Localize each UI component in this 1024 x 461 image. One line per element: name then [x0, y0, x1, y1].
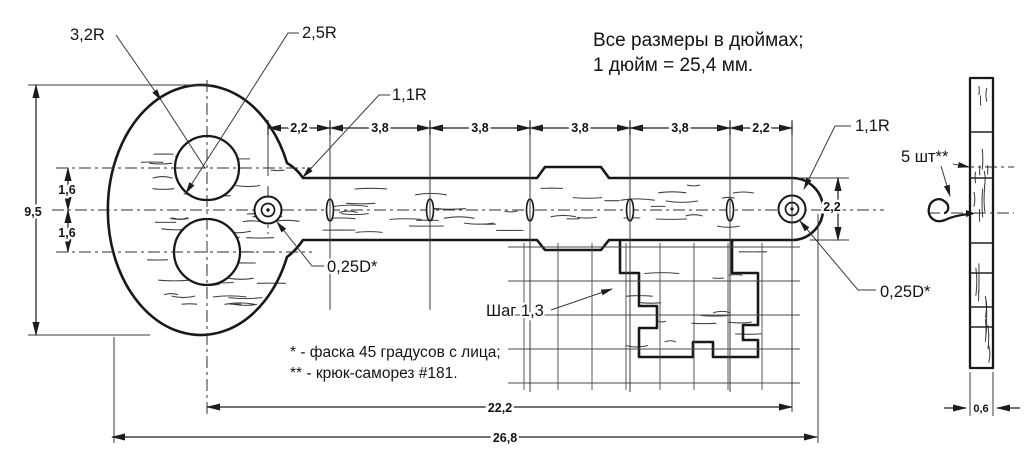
screw-hook	[929, 199, 969, 221]
dim-shank-height: 2,2	[823, 200, 840, 214]
dim-chain-2: 3,8	[471, 121, 488, 135]
wood-grain-shank	[323, 185, 754, 232]
board-side	[970, 78, 993, 368]
footnote-chamfer: * - фаска 45 градусов с лица;	[290, 344, 501, 361]
dim-total-length: 26,8	[493, 431, 517, 445]
side-view	[928, 78, 1014, 368]
dim-holes-span: 22,2	[488, 401, 512, 415]
key-coat-rack-blueprint: Все размеры в дюймах; 1 дюйм = 25,4 мм. …	[0, 0, 1024, 461]
wood-grain-bit	[627, 252, 767, 347]
dim-chain-4: 3,8	[671, 121, 688, 135]
leader-hooks-a	[941, 166, 950, 196]
label-neck-fillet-radius: 1,1R	[392, 86, 427, 104]
leader-grid-step	[551, 289, 612, 310]
leader-neck-fillet	[303, 95, 390, 177]
label-grid-step: Шаг 1,3	[486, 302, 544, 320]
dim-chain-3: 3,8	[571, 121, 588, 135]
technical-drawing: Все размеры в дюймах; 1 дюйм = 25,4 мм. …	[0, 0, 1024, 461]
dim-board-thickness: 0,6	[973, 403, 988, 415]
label-hooks-count: 5 шт**	[901, 148, 949, 166]
dim-lower-hole-offset: 1,6	[58, 226, 75, 240]
leader-head-radius	[116, 35, 161, 100]
label-bow-hole-radius: 2,5R	[302, 24, 337, 42]
dim-upper-hole-offset: 1,6	[58, 183, 75, 197]
dim-chain-0: 2,2	[290, 121, 307, 135]
screw-hole-left	[255, 197, 282, 224]
label-head-radius: 3,2R	[70, 26, 105, 44]
label-screw-hole-left: 0,25D*	[327, 258, 378, 276]
label-end-fillet-radius: 1,1R	[855, 117, 890, 135]
bit-grid	[508, 243, 800, 390]
dim-head-height: 9,5	[24, 205, 41, 219]
dim-chain-5: 2,2	[752, 121, 769, 135]
leader-end-fillet	[804, 126, 851, 189]
dim-chain-1: 3,8	[371, 121, 388, 135]
leader-hooks-b	[953, 164, 969, 167]
extension-lines	[28, 85, 993, 443]
footnote-hook: ** - крюк-саморез #181.	[290, 365, 458, 382]
annotations: Все размеры в дюймах; 1 дюйм = 25,4 мм. …	[24, 24, 988, 445]
key-bit	[620, 240, 758, 357]
label-screw-hole-right: 0,25D*	[880, 283, 931, 301]
units-note-line-1: Все размеры в дюймах;	[593, 30, 804, 51]
units-note-line-2: 1 дюйм = 25,4 мм.	[593, 55, 753, 76]
